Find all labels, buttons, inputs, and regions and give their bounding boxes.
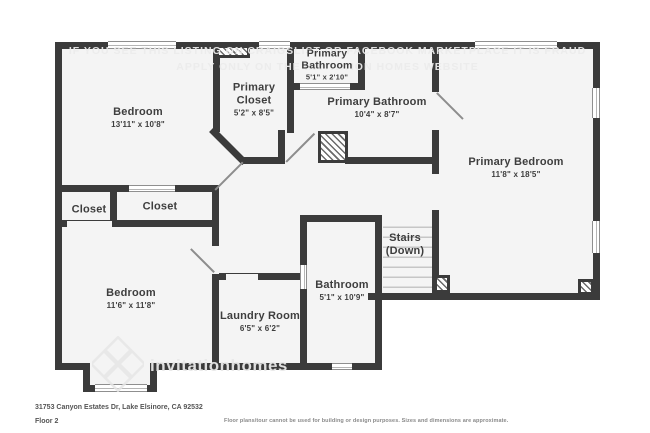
- disclaimer-text: Floor plans/tour cannot be used for buil…: [224, 418, 508, 424]
- wall: [432, 45, 439, 92]
- room-label-closet-right: Closet: [125, 201, 195, 214]
- hatched-post: [578, 279, 594, 295]
- hatched-post: [434, 275, 450, 293]
- room-label-bathroom: Bathroom 5'1" x 10'9": [287, 279, 397, 303]
- room-label-primary-closet: Primary Closet 5'2" x 8'5": [214, 82, 294, 119]
- room-name: Primary Closet: [214, 82, 294, 108]
- room-dims: 5'1" x 2'10": [284, 72, 370, 83]
- room-name: Bedroom: [78, 106, 198, 119]
- door-opening: [67, 221, 112, 227]
- room-dims: 5'2" x 8'5": [214, 108, 294, 119]
- window: [475, 41, 557, 49]
- wall: [368, 293, 600, 300]
- room-name: Primary Bathroom: [297, 96, 457, 109]
- room-name: Closet: [54, 204, 124, 217]
- window: [95, 384, 147, 392]
- room-dims: 10'4" x 8'7": [297, 109, 457, 120]
- room-label-primary-bathroom-small: Primary Bathroom 5'1" x 2'10": [284, 48, 370, 83]
- wall: [300, 215, 382, 222]
- room-dims: (Down): [360, 245, 450, 258]
- window: [300, 83, 350, 90]
- floor-label: Floor 2: [35, 418, 58, 425]
- window: [592, 221, 600, 253]
- room-label-closet-left: Closet: [54, 204, 124, 217]
- room-label-bedroom-bottom-left: Bedroom 11'6" x 11'8": [71, 287, 191, 311]
- hatched-post: [318, 131, 348, 163]
- window: [108, 41, 176, 49]
- floor-plan-canvas: IF YOU SEE THIS LISTING ON CRAIGSLIST OR…: [0, 0, 650, 433]
- room-label-primary-bedroom: Primary Bedroom 11'8" x 18'5": [426, 156, 606, 180]
- room-name: Bedroom: [71, 287, 191, 300]
- room-dims: 13'11" x 10'8": [78, 119, 198, 130]
- room-name: Primary Bedroom: [426, 156, 606, 169]
- room-dims: 11'6" x 11'8": [71, 300, 191, 311]
- room-name: Bathroom: [287, 279, 397, 292]
- room-dims: 6'5" x 6'2": [185, 323, 335, 334]
- room-label-laundry-room: Laundry Room 6'5" x 6'2": [185, 310, 335, 334]
- room-dims: 5'1" x 10'9": [287, 292, 397, 303]
- property-address: 31753 Canyon Estates Dr, Lake Elsinore, …: [35, 404, 203, 411]
- wall: [345, 157, 439, 164]
- window: [332, 363, 352, 370]
- room-name: Stairs: [360, 232, 450, 245]
- window: [592, 88, 600, 118]
- room-name: Laundry Room: [185, 310, 335, 323]
- room-label-stairs: Stairs (Down): [360, 232, 450, 258]
- hatched-post: [216, 45, 250, 58]
- room-dims: 11'8" x 18'5": [426, 169, 606, 180]
- room-label-primary-bathroom: Primary Bathroom 10'4" x 8'7": [297, 96, 457, 120]
- door-opening: [226, 274, 258, 280]
- wall: [278, 130, 285, 164]
- room-label-bedroom-top-left: Bedroom 13'11" x 10'8": [78, 106, 198, 130]
- wall: [349, 83, 365, 90]
- room-name: Closet: [125, 201, 195, 214]
- window: [129, 185, 175, 192]
- room-name: Primary Bathroom: [284, 48, 370, 72]
